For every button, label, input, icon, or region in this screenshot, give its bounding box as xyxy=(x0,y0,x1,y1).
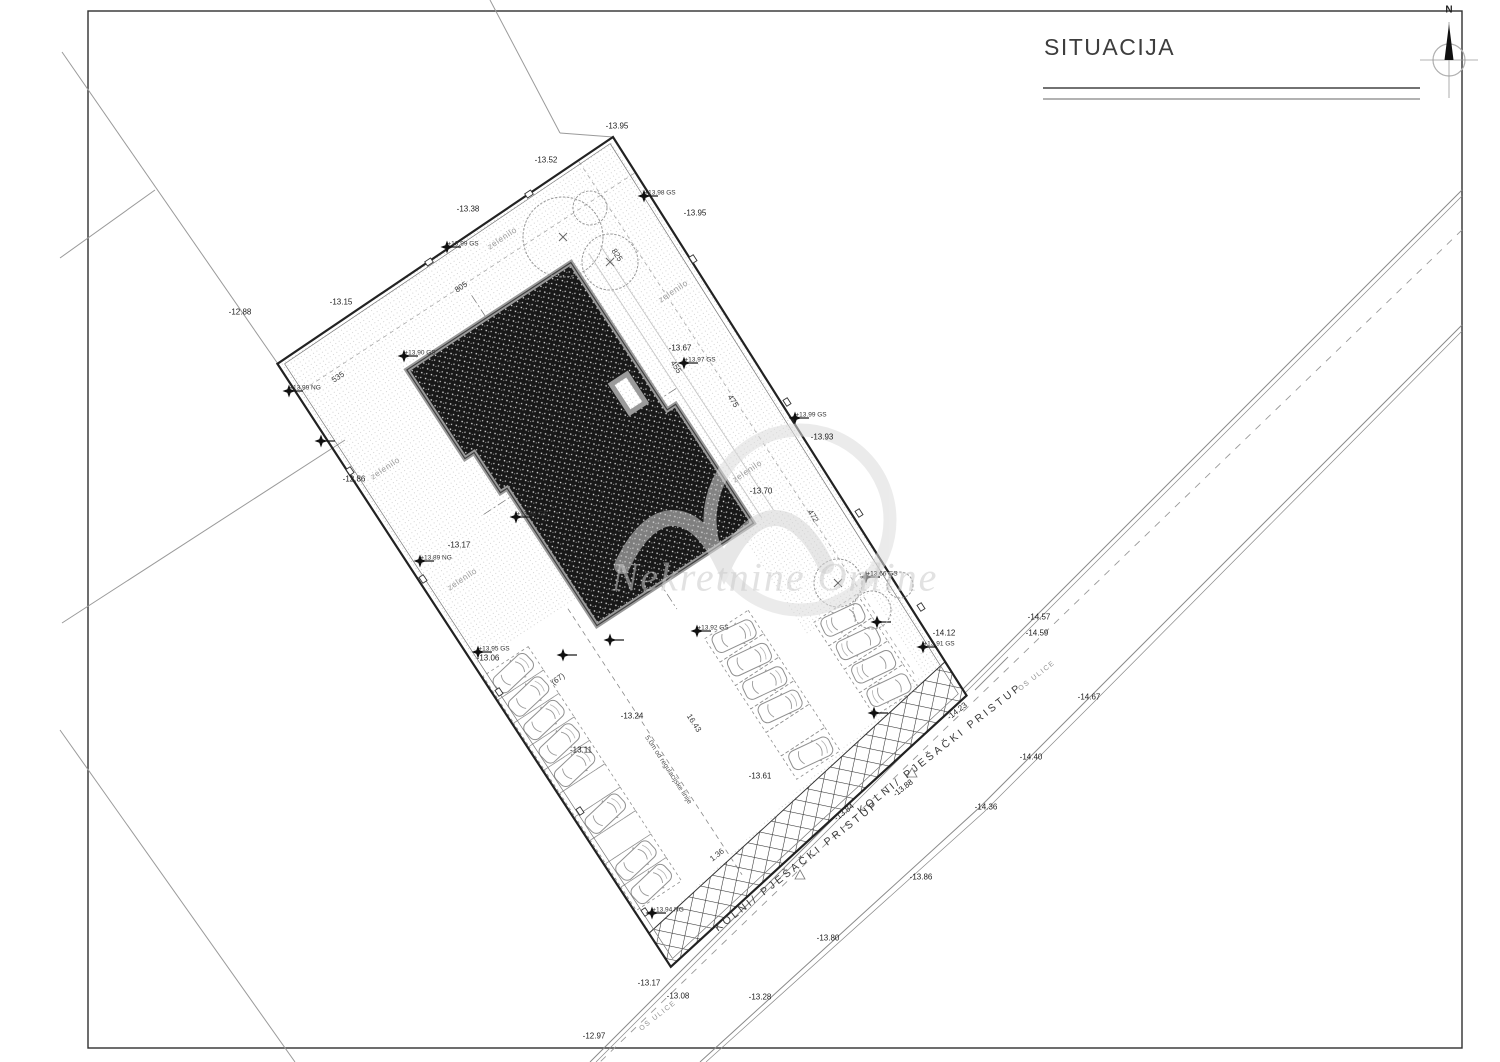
benchmark-label: +13.96 GS xyxy=(516,511,547,518)
benchmark-label: +13.91 GS xyxy=(923,641,954,648)
elevation-label: -13.52 xyxy=(535,156,558,165)
elevation-label: -13.80 xyxy=(817,934,840,943)
benchmark-label: +13.99 GS xyxy=(447,241,478,248)
elevation-label: -14.36 xyxy=(975,803,998,812)
benchmark-label: +13.90 GS xyxy=(404,350,435,357)
elevation-label: -13.95 xyxy=(684,209,707,218)
elevation-label: -13.38 xyxy=(457,205,480,214)
elevation-label: -14.59 xyxy=(1026,629,1049,638)
benchmark-label: +13.97 GS xyxy=(684,357,715,364)
elevation-label: -12.88 xyxy=(229,308,252,317)
elevation-label: -13.28 xyxy=(749,993,772,1002)
north-compass-icon xyxy=(1420,22,1478,98)
benchmark-label: +13.99 NG xyxy=(289,385,321,392)
elevation-label: -13.95 xyxy=(606,122,629,131)
elevation-label: -12.97 xyxy=(583,1032,606,1041)
benchmark-label: +13.99 GS xyxy=(795,412,826,419)
elevation-label: -13.17 xyxy=(448,541,471,550)
elevation-label: -14.57 xyxy=(1028,613,1051,622)
title-underline xyxy=(1043,88,1420,99)
elevation-label: -13.11 xyxy=(570,746,592,755)
elevation-label: -13.24 xyxy=(621,712,644,721)
benchmark-label: +13.89 NG xyxy=(420,555,452,562)
benchmark-label: +13.92 GS xyxy=(697,625,728,632)
benchmark-label: +13.94 NG xyxy=(652,907,684,914)
north-label: N xyxy=(1445,5,1452,16)
elevation-label: -13.08 xyxy=(667,992,690,1001)
benchmark-label: +13.98 GS xyxy=(644,190,675,197)
parcel-group xyxy=(273,137,1010,967)
elevation-label: -12.86 xyxy=(343,475,366,484)
elevation-label: -13.17 xyxy=(638,979,661,988)
elevation-label: -13.15 xyxy=(330,298,353,307)
elevation-label: -13.86 xyxy=(910,873,933,882)
benchmark-label: +13.95 GS xyxy=(478,646,509,653)
watermark-text: Nekretnine Online xyxy=(612,554,939,601)
elevation-label: -14.67 xyxy=(1078,693,1101,702)
elevation-label: -13.93 xyxy=(811,433,834,442)
site-plan-sheet: -13.95-13.52-13.38-13.95-13.15-12.88-12.… xyxy=(0,0,1500,1062)
elevation-label: -13.67 xyxy=(669,344,692,353)
elevation-label: -14.12 xyxy=(933,629,956,638)
elevation-label: -13.61 xyxy=(749,772,772,781)
elevation-label: -13.06 xyxy=(477,654,500,663)
page-title: SITUACIJA xyxy=(1044,34,1175,61)
elevation-label: -14.40 xyxy=(1020,753,1043,762)
elevation-label: -13.70 xyxy=(750,487,773,496)
